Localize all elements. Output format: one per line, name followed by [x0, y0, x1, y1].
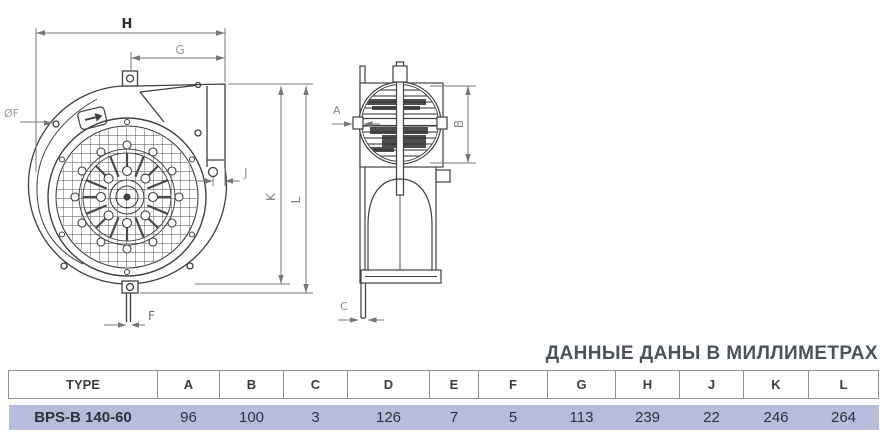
front-view-drawing: H G ØF J K L F: [0, 0, 335, 345]
cell-f: 5: [479, 405, 548, 430]
dim-label-b: B: [452, 120, 466, 128]
cell-c: 3: [284, 405, 348, 430]
col-header-k: K: [744, 371, 809, 399]
cell-d: 126: [348, 405, 430, 430]
cell-g: 113: [548, 405, 616, 430]
table-header-row: TYPE A B C D E F G H J K L: [9, 371, 879, 399]
cell-a: 96: [158, 405, 220, 430]
page: H G ØF J K L F: [0, 0, 885, 441]
cell-k: 246: [744, 405, 809, 430]
dim-label-h: H: [122, 17, 133, 32]
col-header-b: B: [220, 371, 284, 399]
table-row: BPS-B 140-60 96 100 3 126 7 5 113 239 22…: [9, 405, 879, 430]
dimensions-table: TYPE A B C D E F G H J K L BPS-B 140-60 …: [8, 370, 879, 430]
dim-label-f: F: [148, 309, 155, 323]
cell-type: BPS-B 140-60: [9, 405, 158, 430]
cell-b: 100: [220, 405, 284, 430]
col-header-j: J: [680, 371, 744, 399]
col-header-d: D: [348, 371, 430, 399]
col-header-l: L: [809, 371, 879, 399]
units-note: ДАННЫЕ ДАНЫ В МИЛЛИМЕТРАХ: [546, 343, 878, 365]
col-header-a: A: [158, 371, 220, 399]
impeller-hub: [97, 167, 158, 228]
col-header-type: TYPE: [9, 371, 158, 399]
col-header-h: H: [616, 371, 680, 399]
col-header-c: C: [284, 371, 348, 399]
side-view-drawing: A B C: [330, 0, 515, 345]
col-header-f: F: [479, 371, 548, 399]
cell-l: 264: [809, 405, 879, 430]
dim-label-c: C: [340, 300, 348, 313]
side-view-body: [353, 62, 450, 318]
dim-label-g: G: [175, 43, 184, 57]
cell-e: 7: [430, 405, 479, 430]
dim-label-k: K: [264, 192, 278, 201]
cell-j: 22: [680, 405, 744, 430]
dim-label-a: A: [333, 104, 341, 117]
col-header-g: G: [548, 371, 616, 399]
col-header-e: E: [430, 371, 479, 399]
dim-label-l: L: [289, 196, 303, 203]
dim-label-f-diameter: ØF: [4, 107, 19, 120]
cell-h: 239: [616, 405, 680, 430]
dim-label-j: J: [243, 166, 248, 180]
